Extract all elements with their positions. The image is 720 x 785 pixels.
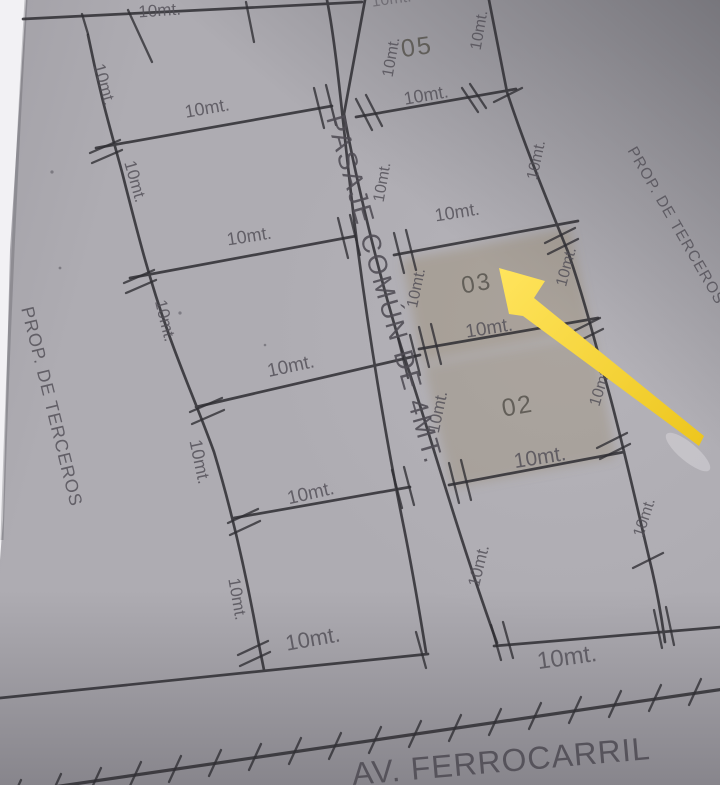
lot-number-05: 05	[399, 31, 434, 63]
lot-number-02: 02	[500, 390, 536, 423]
plat-drawing: 10mt. 10mt. 10mt. 10mt. 10mt. 10mt. 10mt…	[0, 0, 720, 785]
survey-plan-photo: 10mt. 10mt. 10mt. 10mt. 10mt. 10mt. 10mt…	[0, 0, 720, 785]
lot-number-03: 03	[459, 268, 494, 300]
dimension-label: 10mt.	[138, 0, 182, 21]
